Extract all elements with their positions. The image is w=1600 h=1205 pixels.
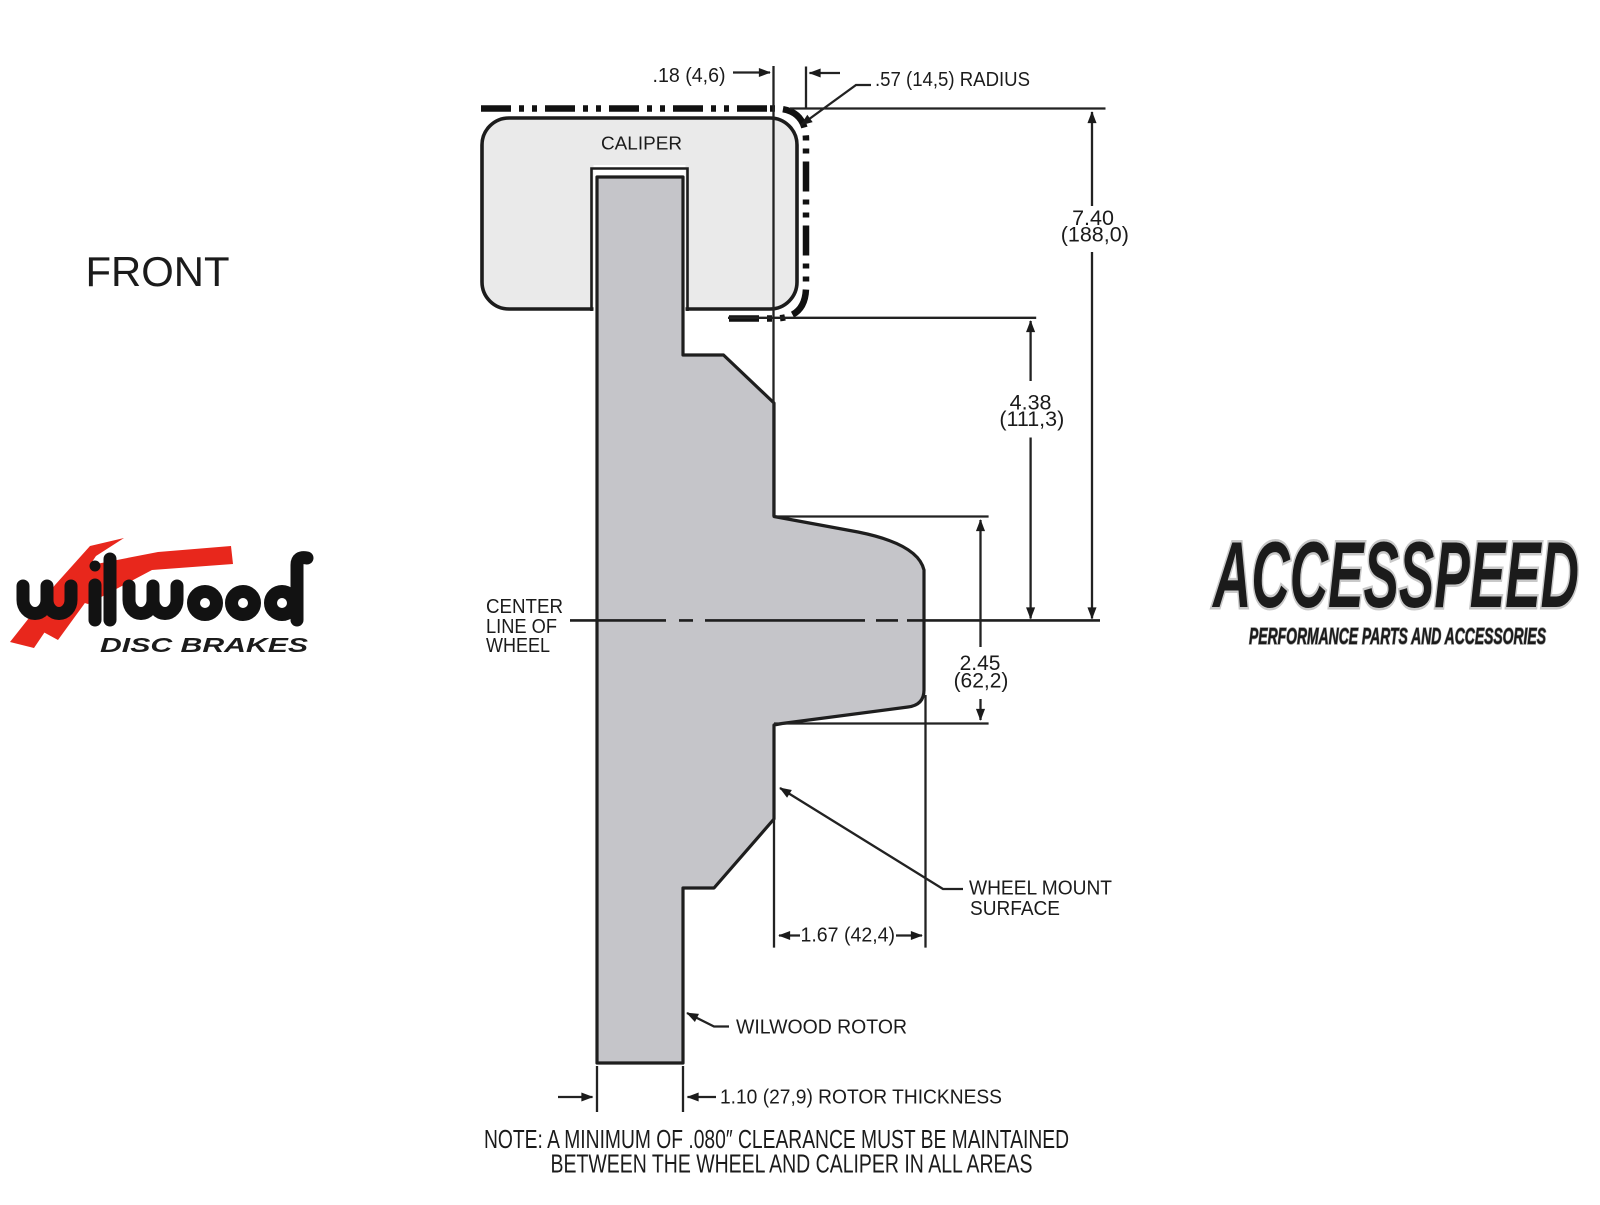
svg-text:.57 (14,5) RADIUS: .57 (14,5) RADIUS — [875, 69, 1030, 91]
svg-text:CALIPER: CALIPER — [601, 133, 682, 154]
svg-text:WHEEL MOUNT: WHEEL MOUNT — [969, 878, 1112, 900]
svg-text:PERFORMANCE PARTS AND ACCESSOR: PERFORMANCE PARTS AND ACCESSORIES — [1249, 623, 1546, 649]
svg-text:SURFACE: SURFACE — [970, 898, 1060, 920]
svg-text:BETWEEN THE WHEEL AND CALIPER: BETWEEN THE WHEEL AND CALIPER IN ALL ARE… — [551, 1149, 1033, 1179]
svg-text:.18 (4,6): .18 (4,6) — [653, 65, 726, 87]
svg-text:(111,3): (111,3) — [999, 407, 1064, 431]
svg-text:ACCESSPEED: ACCESSPEED — [1212, 522, 1579, 627]
svg-text:WHEEL: WHEEL — [486, 634, 550, 657]
svg-text:DISC BRAKES: DISC BRAKES — [100, 635, 309, 657]
svg-text:WILWOOD ROTOR: WILWOOD ROTOR — [736, 1016, 907, 1039]
svg-text:(188,0): (188,0) — [1061, 223, 1129, 247]
svg-text:1.10 (27,9) ROTOR THICKNESS: 1.10 (27,9) ROTOR THICKNESS — [720, 1086, 1002, 1109]
svg-text:FRONT: FRONT — [86, 248, 230, 295]
svg-text:(62,2): (62,2) — [954, 670, 1009, 693]
svg-text:1.67 (42,4): 1.67 (42,4) — [801, 925, 896, 947]
